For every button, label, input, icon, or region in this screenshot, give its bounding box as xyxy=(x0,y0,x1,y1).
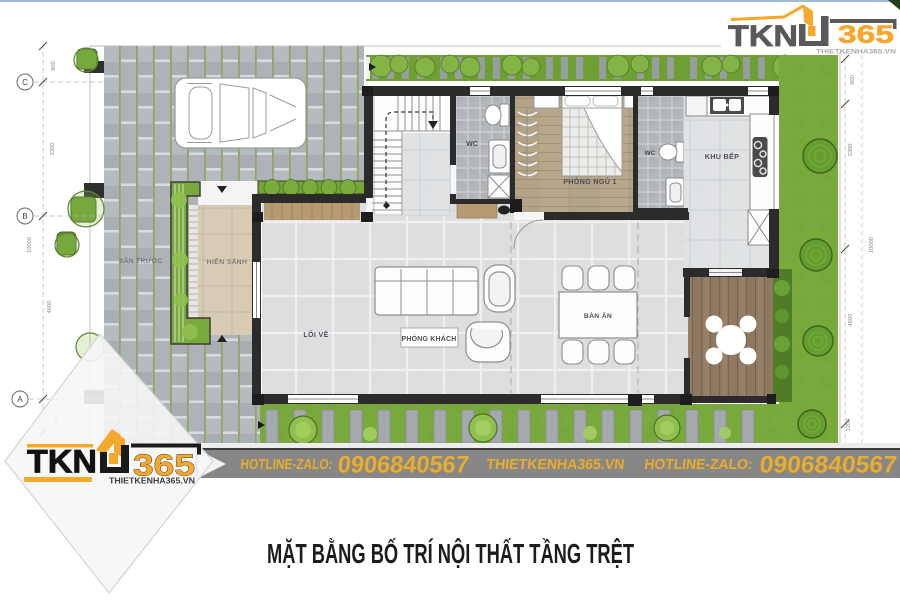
svg-text:MẶT BẰNG BỐ TRÍ NỘI THẤT TẦNG: MẶT BẰNG BỐ TRÍ NỘI THẤT TẦNG TRỆT xyxy=(267,537,634,569)
svg-text:HOTLINE-ZALO:: HOTLINE-ZALO: xyxy=(240,457,334,473)
svg-text:PHÒNG KHÁCH: PHÒNG KHÁCH xyxy=(401,334,456,343)
svg-text:900: 900 xyxy=(850,75,856,85)
svg-text:C: C xyxy=(22,78,28,87)
svg-text:WC: WC xyxy=(645,150,656,157)
svg-text:3300: 3300 xyxy=(848,144,854,157)
svg-text:KHU BẾP: KHU BẾP xyxy=(705,151,739,161)
svg-text:365: 365 xyxy=(838,21,894,49)
svg-text:THIETKENHA365.VN: THIETKENHA365.VN xyxy=(816,49,897,56)
svg-text:900: 900 xyxy=(51,61,57,71)
svg-text:10000: 10000 xyxy=(869,237,875,253)
svg-text:10000: 10000 xyxy=(27,237,33,253)
svg-text:3300: 3300 xyxy=(50,143,56,156)
svg-text:0906840567: 0906840567 xyxy=(758,452,898,479)
svg-text:1200: 1200 xyxy=(846,419,852,432)
svg-text:THIETKENHA365.VN: THIETKENHA365.VN xyxy=(109,477,195,486)
svg-text:BÀN ĂN: BÀN ĂN xyxy=(584,311,612,320)
svg-text:4600: 4600 xyxy=(848,314,854,327)
svg-text:HOTLINE-ZALO:: HOTLINE-ZALO: xyxy=(644,457,754,473)
svg-text:TKN: TKN xyxy=(27,444,97,480)
svg-text:0906840567: 0906840567 xyxy=(336,452,470,479)
svg-text:PHÒNG NGỦ 1: PHÒNG NGỦ 1 xyxy=(563,177,617,186)
svg-text:4600: 4600 xyxy=(47,301,53,314)
svg-text:A: A xyxy=(17,395,23,404)
svg-text:SÂN TRƯỚC: SÂN TRƯỚC xyxy=(119,256,162,265)
svg-text:WC: WC xyxy=(466,141,478,148)
svg-text:TKN: TKN xyxy=(728,20,798,53)
svg-text:THIETKENHA365.VN: THIETKENHA365.VN xyxy=(486,457,626,473)
svg-text:HIÊN SẢNH: HIÊN SẢNH xyxy=(207,257,248,266)
svg-text:B: B xyxy=(22,212,27,221)
